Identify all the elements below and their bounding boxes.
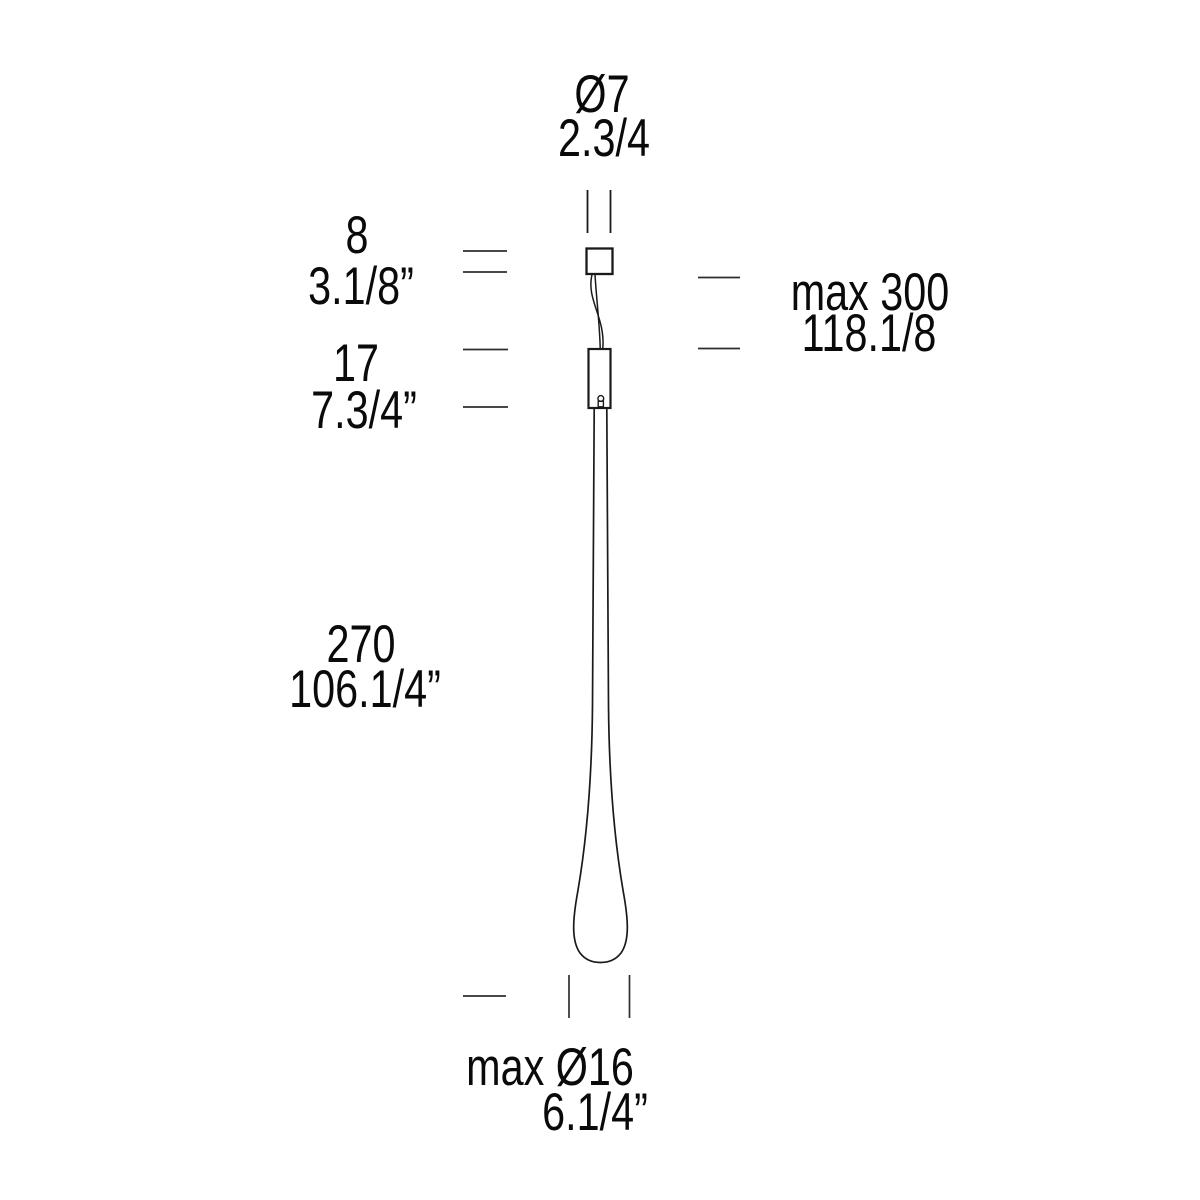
label-canopy-height-imperial: 3.1/8” — [308, 260, 414, 314]
label-max-drop-imperial: 118.1/8 — [802, 307, 937, 361]
label-top-diameter-imperial: 2.3/4 — [558, 112, 650, 166]
label-max-diameter-imperial: 6.1/4” — [542, 1086, 648, 1140]
canopy-box — [587, 249, 613, 275]
label-driver-height-imperial: 7.3/4” — [311, 384, 417, 438]
cable-lock-screw — [598, 396, 604, 407]
ceiling-cable-lines — [588, 190, 611, 233]
right-dimension-ticks — [698, 278, 740, 349]
diagram-canvas: Ø7 2.3/4 8 3.1/8” 17 7.3/4” max 300 118.… — [0, 0, 1200, 1200]
glass-drop-profile — [574, 408, 628, 963]
driver-cylinder — [589, 349, 611, 408]
label-glass-length-imperial: 106.1/4” — [289, 663, 441, 717]
left-dimension-ticks — [463, 251, 508, 407]
suspension-wires — [591, 275, 603, 349]
diameter-ticks — [569, 975, 630, 1018]
pendant-lamp-drawing — [0, 0, 1200, 1200]
label-canopy-height-metric: 8 — [346, 209, 369, 263]
